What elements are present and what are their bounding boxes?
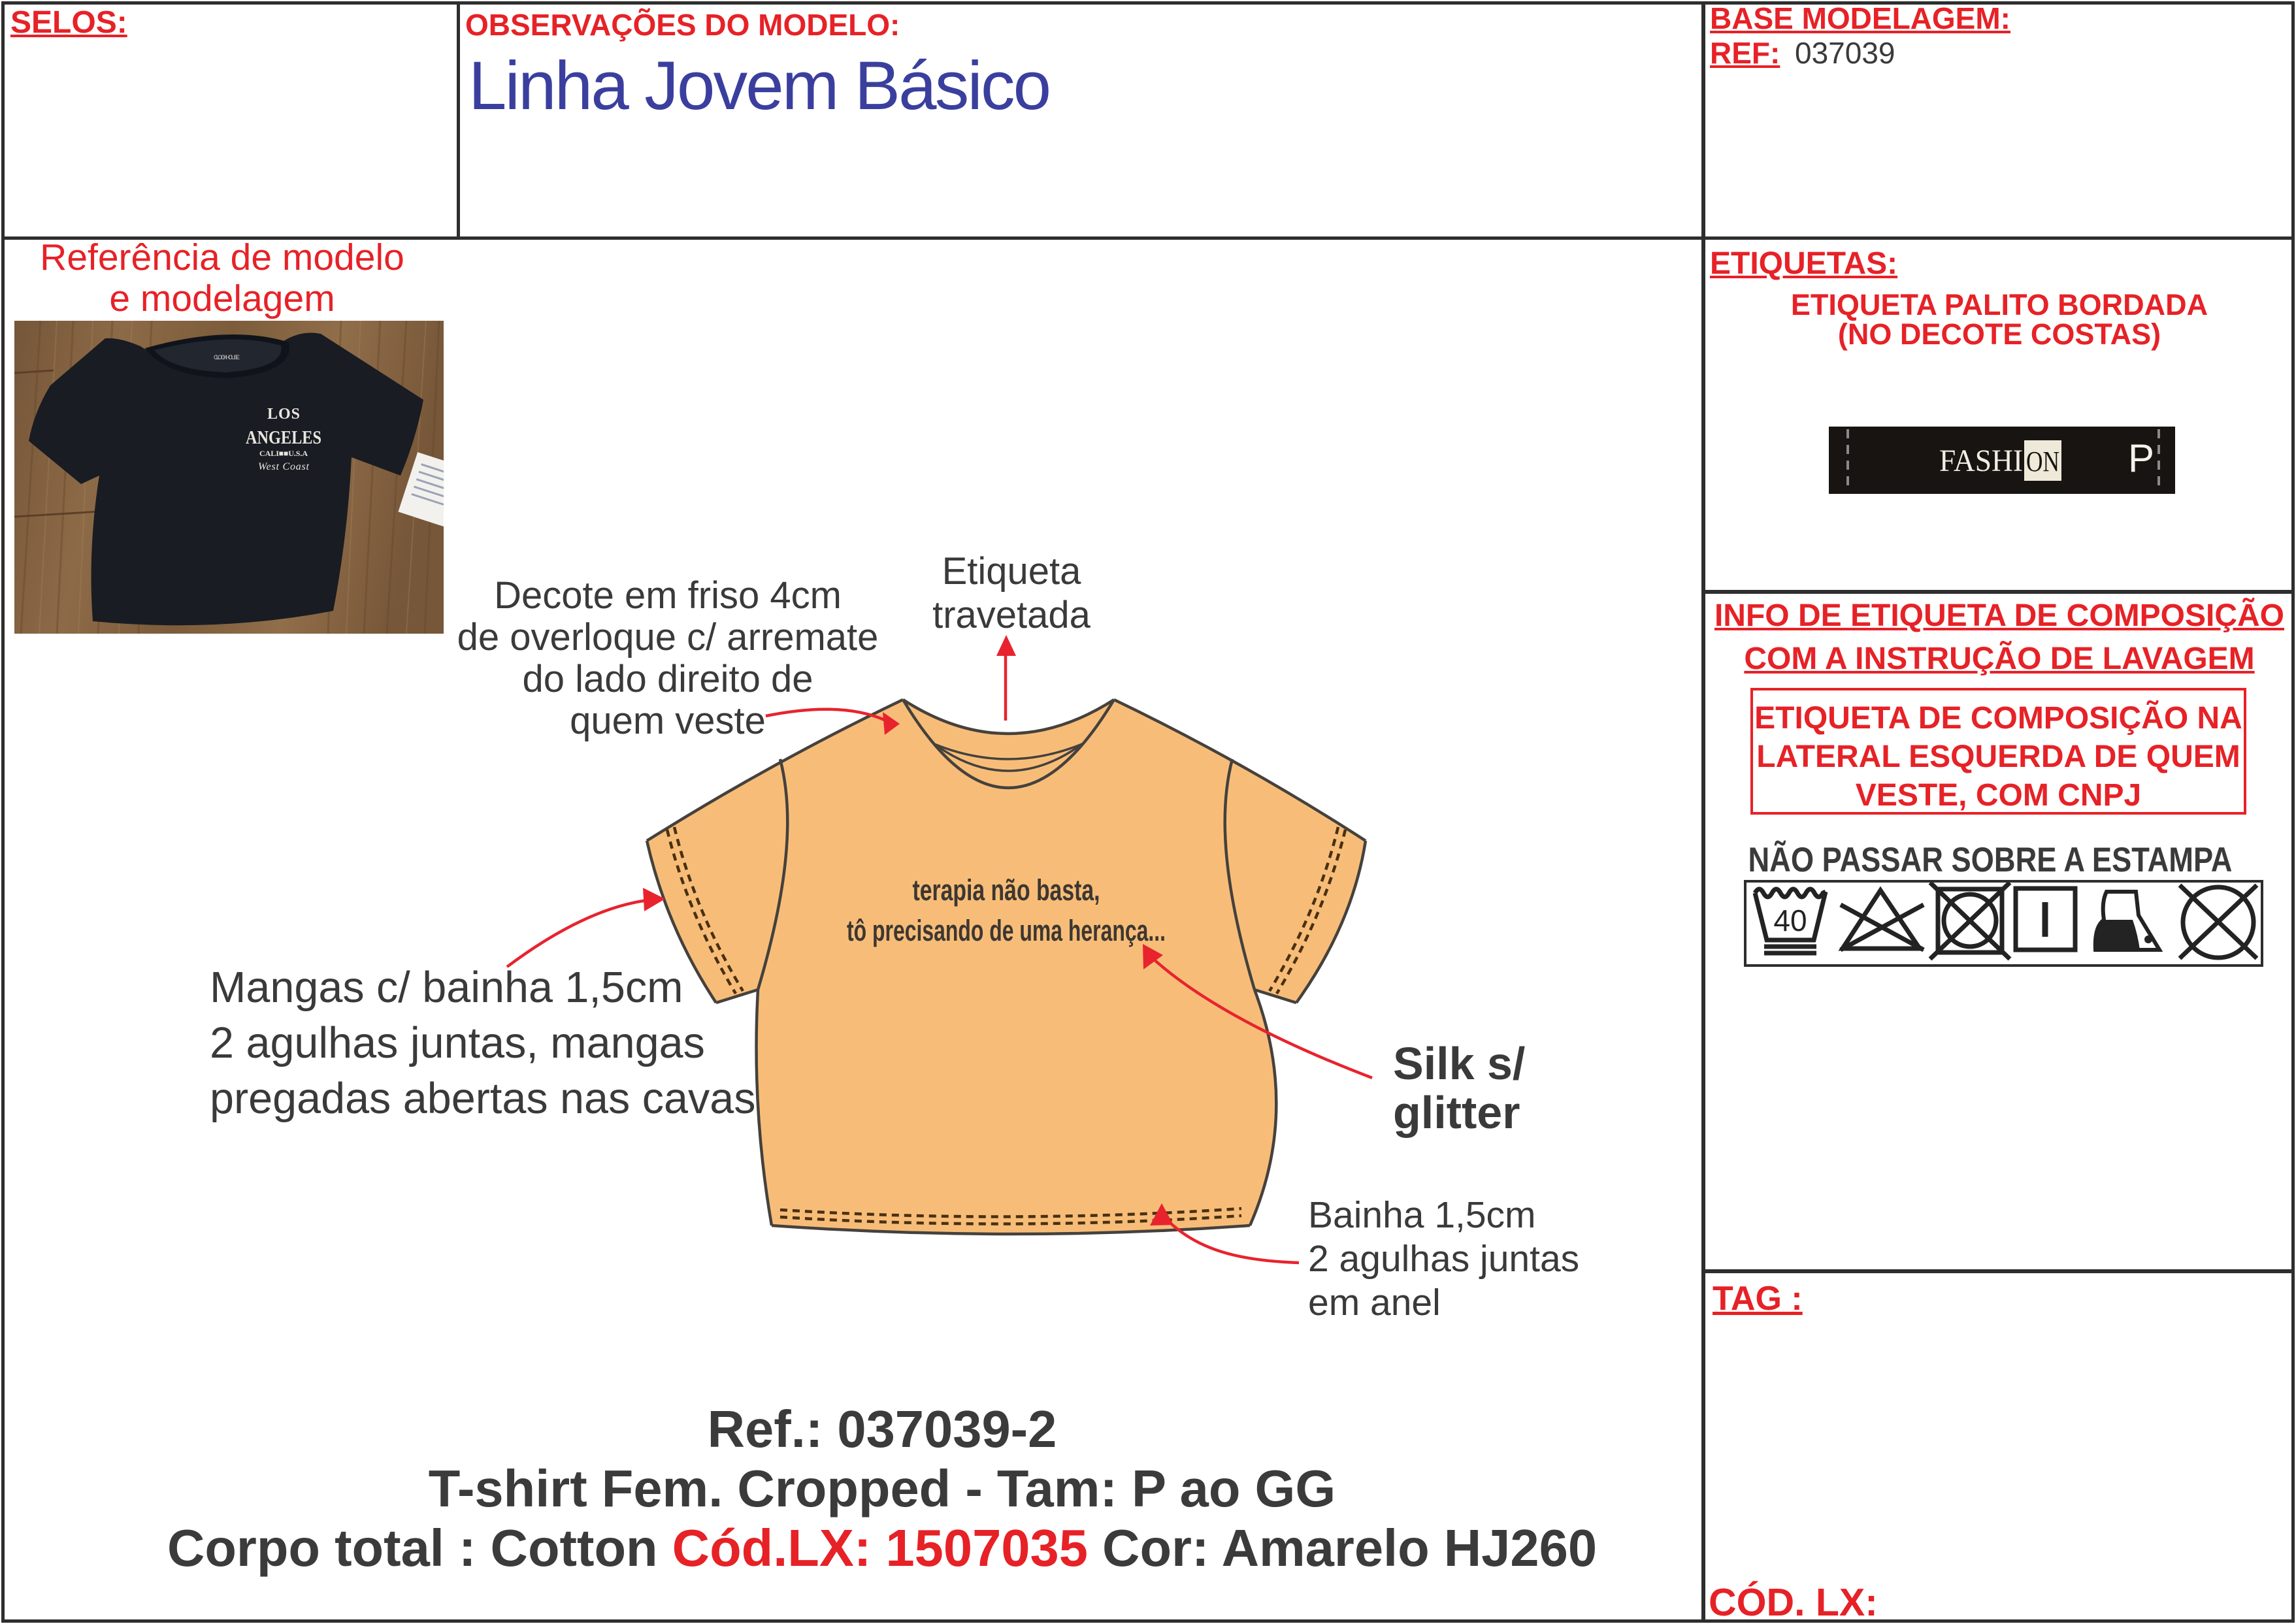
svg-text:West Coast: West Coast — [258, 461, 310, 472]
svg-text:LOS: LOS — [267, 406, 300, 423]
svg-text:ON: ON — [2026, 446, 2059, 478]
svg-text:FASHI: FASHI — [1939, 444, 2023, 478]
svg-text:CALI■■U.S.A: CALI■■U.S.A — [259, 449, 308, 458]
svg-text:terapia não basta,: terapia não basta, — [913, 873, 1100, 907]
svg-text:NÃO PASSAR SOBRE A ESTAMPA: NÃO PASSAR SOBRE A ESTAMPA — [1748, 840, 2233, 879]
svg-text:P: P — [2128, 436, 2154, 480]
svg-text:tô precisando de uma herança..: tô precisando de uma herança... — [847, 914, 1166, 947]
svg-text:40: 40 — [1773, 903, 1807, 937]
svg-text:ANGELES: ANGELES — [246, 427, 321, 448]
svg-text:CLOCKHOUSE: CLOCKHOUSE — [214, 354, 240, 361]
